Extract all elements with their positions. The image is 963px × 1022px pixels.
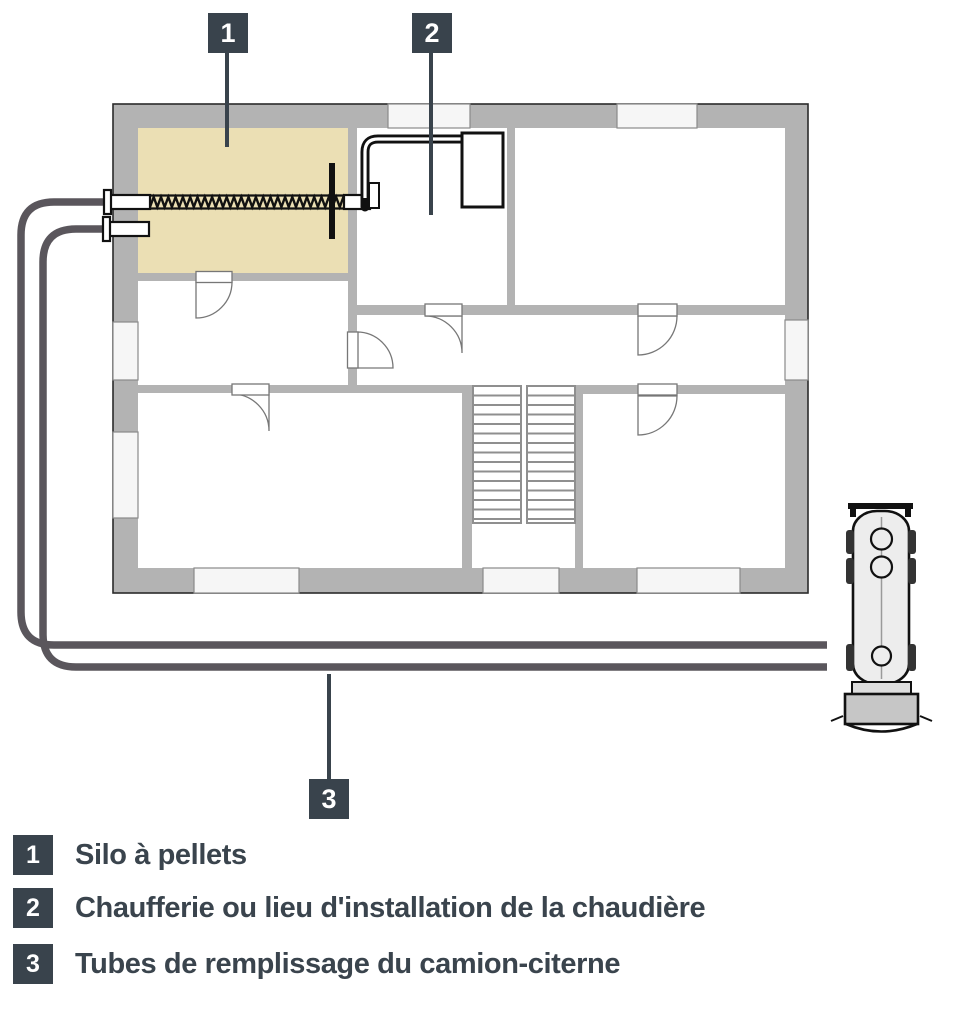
truck-pod [846, 644, 854, 671]
coupling-flange-2 [103, 217, 110, 241]
truck-rear-bumper [848, 503, 913, 509]
truck-pod [908, 558, 916, 584]
legend-badge-2: 2 [13, 888, 53, 928]
wall-corridor-upper-2 [462, 305, 638, 315]
coupling-pipe-2 [109, 222, 149, 236]
truck-cab [845, 694, 918, 724]
truck-pod [908, 530, 916, 554]
boiler [462, 133, 503, 207]
truck-pod [908, 644, 916, 671]
staircase-flight-right [526, 385, 576, 524]
wall-corridor-lower-3 [575, 385, 638, 394]
truck-manhole-2 [871, 557, 892, 578]
legend-item-silo: 1 Silo à pellets [13, 835, 247, 875]
legend-label-3: Tubes de remplissage du camion-citerne [75, 948, 620, 981]
wall-stairwell-left [462, 393, 472, 568]
window-right-1 [785, 320, 808, 380]
window-bottom-3 [637, 568, 740, 593]
wall-corridor-upper-3 [677, 305, 785, 315]
truck-rear-tab-right [905, 509, 911, 517]
pipe-bracket [369, 183, 379, 208]
wall-stairwell-right [575, 393, 583, 568]
window-left-2 [113, 432, 138, 518]
wall-corridor-upper-1 [357, 305, 425, 315]
legend-badge-3: 3 [13, 944, 53, 984]
silo-agitator-bar [329, 163, 335, 239]
staircase-flight-left [472, 385, 522, 524]
callout-badge-2: 2 [412, 13, 452, 53]
truck-mirror-left [831, 716, 843, 721]
coupling-pipe-1 [110, 195, 150, 209]
wall-silo-boilerroom [348, 128, 357, 315]
legend-item-boiler-room: 2 Chaufferie ou lieu d'installation de l… [13, 888, 705, 928]
wall-corridor-lower-2 [269, 385, 472, 393]
wall-corridor-lower-4 [677, 385, 785, 394]
truck-pod [846, 530, 854, 554]
truck-manhole-3 [872, 647, 891, 666]
wall-silo-bottom-left [138, 273, 196, 281]
legend-label-1: Silo à pellets [75, 839, 247, 872]
wall-corridor-lower-1 [138, 385, 232, 393]
legend-label-2: Chaufferie ou lieu d'installation de la … [75, 892, 705, 925]
legend-item-filling-tubes: 3 Tubes de remplissage du camion-citerne [13, 944, 620, 984]
wall-hall-left-top [348, 315, 357, 332]
legend-badge-1: 1 [13, 835, 53, 875]
window-bottom-1 [194, 568, 299, 593]
tanker-truck [831, 503, 932, 732]
callout-badge-3: 3 [309, 779, 349, 819]
truck-pod [846, 558, 854, 584]
window-left-1 [113, 322, 138, 380]
pellet-heating-diagram: 1 2 3 1 Silo à pellets 2 Chaufferie ou l… [0, 0, 963, 1022]
window-bottom-2 [483, 568, 559, 593]
truck-mirror-right [920, 716, 932, 721]
wall-silo-bottom-right [232, 273, 348, 281]
callout-badge-1: 1 [208, 13, 248, 53]
truck-rear-tab-left [850, 509, 856, 517]
truck-manhole-1 [871, 529, 892, 550]
coupling-flange-1 [104, 190, 111, 214]
wall-boilerroom-right [507, 128, 515, 315]
window-top-2 [617, 104, 697, 128]
wall-hall-left-bottom [348, 368, 357, 385]
